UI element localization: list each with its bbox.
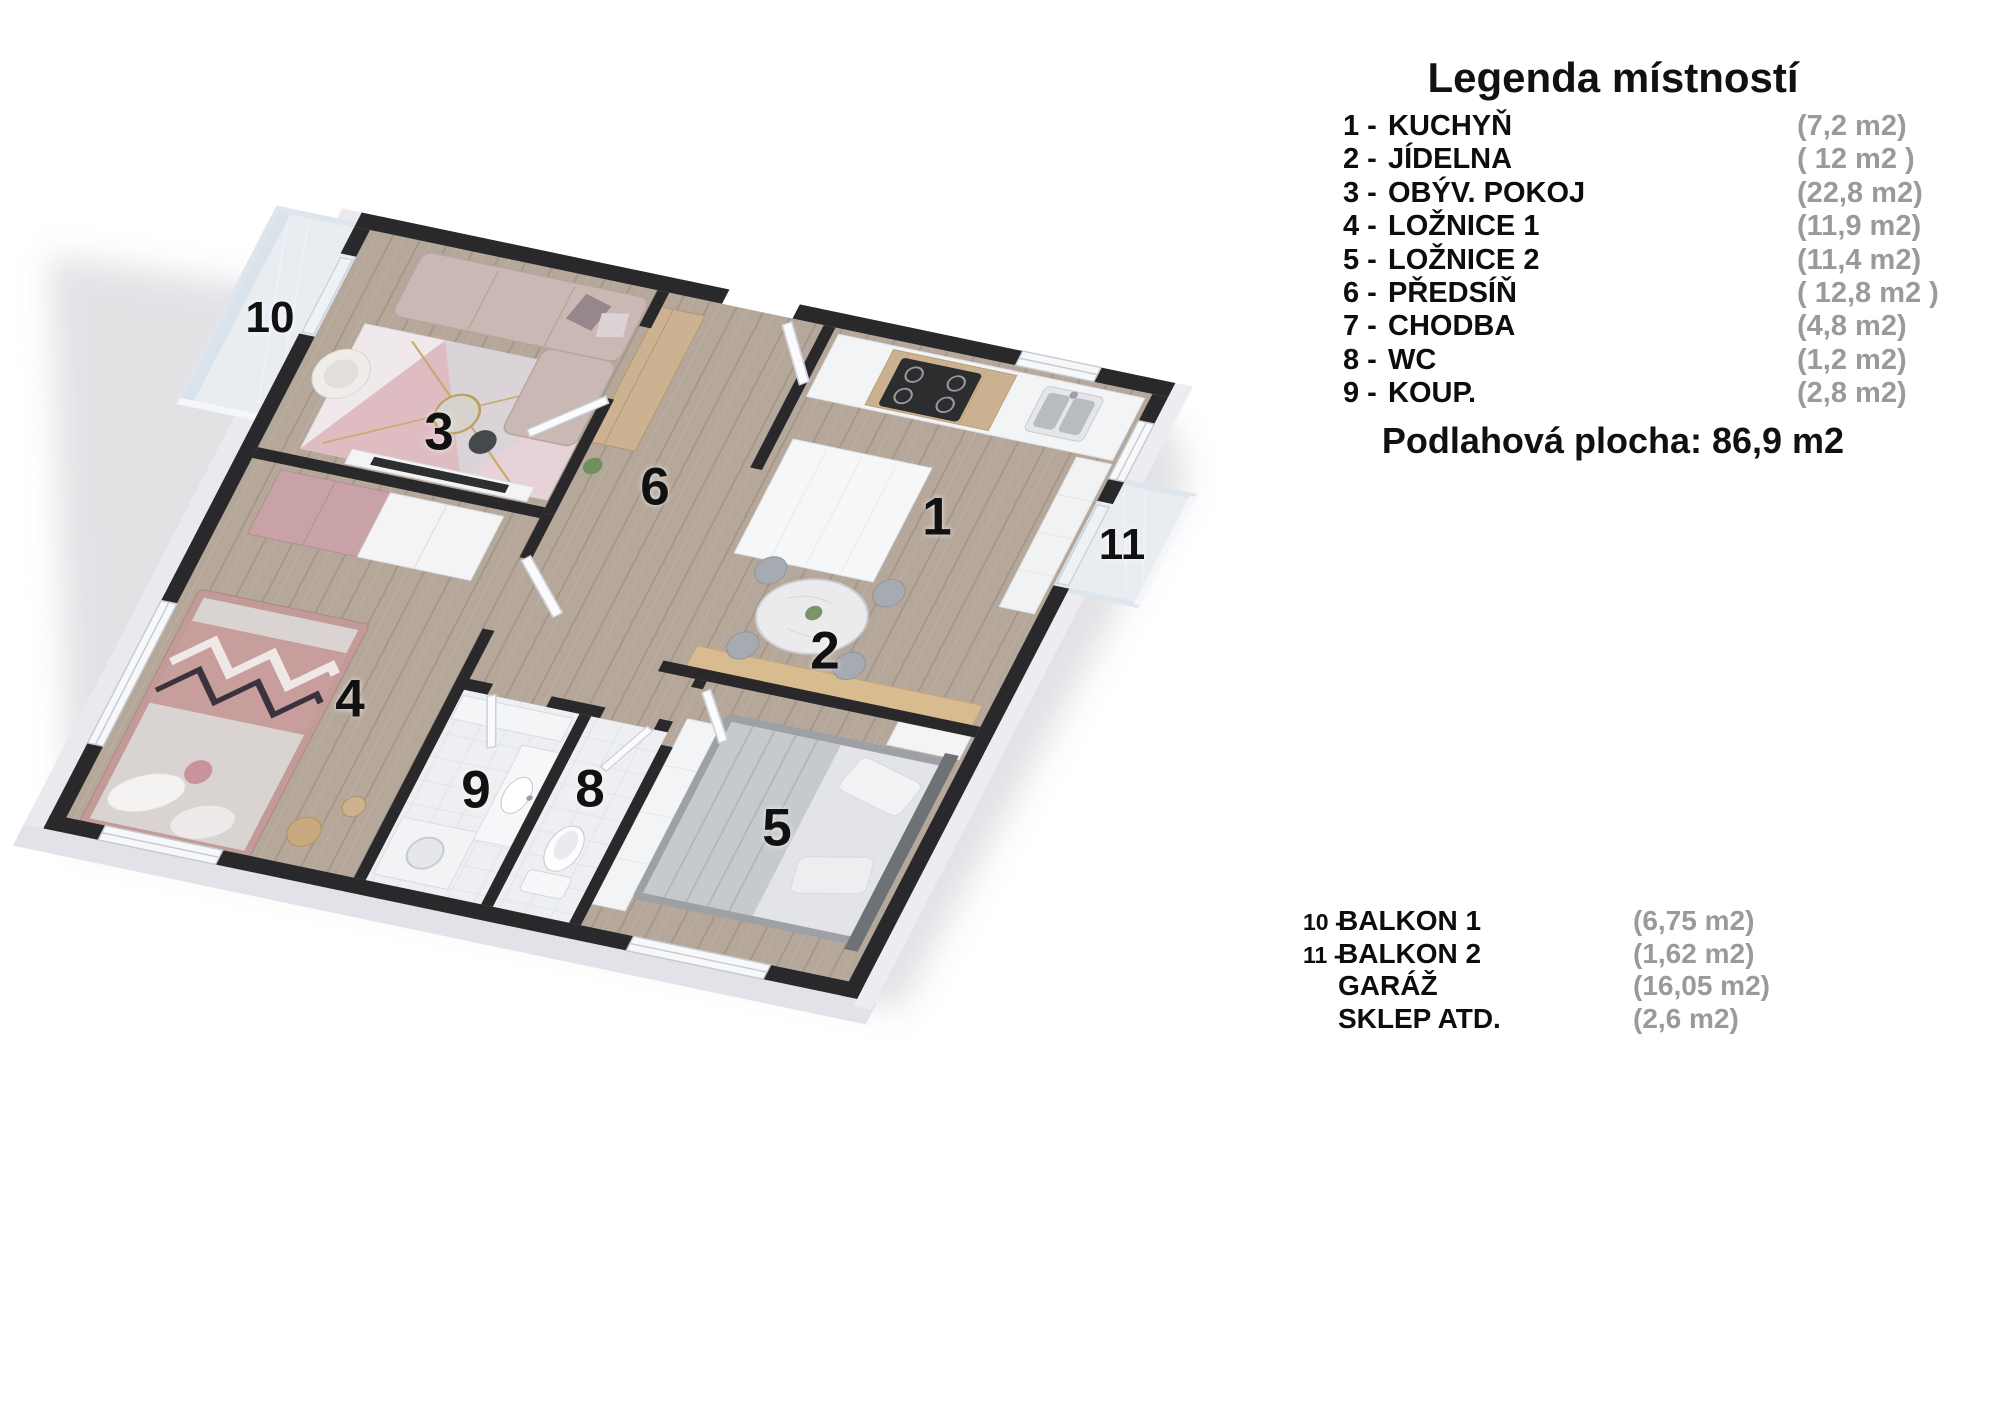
legend-title: Legenda místností	[1343, 54, 1883, 102]
plan-label-koupelna: 9	[461, 764, 490, 817]
total-floor-area: Podlahová plocha: 86,9 m2	[1343, 420, 1883, 462]
room-number: 1 -	[1343, 110, 1388, 143]
room-number: 4 -	[1343, 210, 1388, 243]
extra-number: 10 -	[1303, 909, 1338, 936]
legend-row: 1 - KUCHYŇ (7,2 m2)	[1343, 110, 1943, 143]
room-area: (2,8 m2)	[1797, 377, 1943, 410]
room-number: 3 -	[1343, 177, 1388, 210]
legend-extra-row: 11 - BALKON 2 (1,62 m2)	[1303, 938, 1923, 971]
room-number: 9 -	[1343, 377, 1388, 410]
legend-row: 5 - LOŽNICE 2 (11,4 m2)	[1343, 244, 1943, 277]
plan-label-balkon1: 10	[246, 296, 295, 340]
legend-extra-row: 10 - BALKON 1 (6,75 m2)	[1303, 905, 1923, 938]
plan-label-jidelna: 2	[810, 625, 839, 678]
legend-extras-list: 10 - BALKON 1 (6,75 m2) 11 - BALKON 2 (1…	[1303, 905, 1923, 1036]
room-area: (7,2 m2)	[1797, 110, 1943, 143]
legend-row: 6 - PŘEDSÍŇ ( 12,8 m2 )	[1343, 277, 1943, 310]
extra-area: (16,05 m2)	[1633, 970, 1923, 1002]
room-area: (1,2 m2)	[1797, 344, 1943, 377]
legend-room-list: 1 - KUCHYŇ (7,2 m2) 2 - JÍDELNA ( 12 m2 …	[1343, 110, 1943, 411]
room-area: (4,8 m2)	[1797, 310, 1943, 343]
extra-area: (6,75 m2)	[1633, 905, 1923, 937]
room-label: CHODBA	[1388, 310, 1797, 343]
room-label: LOŽNICE 1	[1388, 210, 1797, 243]
room-label: KOUP.	[1388, 377, 1797, 410]
legend-row: 7 - CHODBA (4,8 m2)	[1343, 310, 1943, 343]
room-number: 2 -	[1343, 143, 1388, 176]
room-number: 8 -	[1343, 344, 1388, 377]
plan-label-balkon2: 11	[1099, 523, 1146, 567]
plan-label-wc: 8	[575, 763, 604, 816]
plan-label-kuchyn: 1	[922, 491, 951, 544]
room-area: ( 12,8 m2 )	[1797, 277, 1943, 310]
extra-label: BALKON 1	[1338, 905, 1633, 937]
room-area: ( 12 m2 )	[1797, 143, 1943, 176]
legend-row: 4 - LOŽNICE 1 (11,9 m2)	[1343, 210, 1943, 243]
legend-row: 8 - WC (1,2 m2)	[1343, 344, 1943, 377]
extra-area: (1,62 m2)	[1633, 938, 1923, 970]
plan-label-obyv-pokoj: 3	[424, 406, 453, 459]
room-number: 5 -	[1343, 244, 1388, 277]
room-label: PŘEDSÍŇ	[1388, 277, 1797, 310]
legend-row: 2 - JÍDELNA ( 12 m2 )	[1343, 143, 1943, 176]
room-label: LOŽNICE 2	[1388, 244, 1797, 277]
room-area: (11,9 m2)	[1797, 210, 1943, 243]
legend-extra-row: SKLEP ATD. (2,6 m2)	[1303, 1003, 1923, 1036]
room-area: (22,8 m2)	[1797, 177, 1943, 210]
legend-row: 9 - KOUP. (2,8 m2)	[1343, 377, 1943, 410]
room-number: 7 -	[1343, 310, 1388, 343]
room-label: JÍDELNA	[1388, 143, 1797, 176]
plan-label-loznice2: 5	[762, 802, 791, 855]
room-number: 6 -	[1343, 277, 1388, 310]
plan-label-loznice1: 4	[335, 673, 364, 726]
extra-label: SKLEP ATD.	[1338, 1003, 1633, 1035]
plan-label-predsin: 6	[640, 461, 669, 514]
extra-label: GARÁŽ	[1338, 970, 1633, 1002]
extra-area: (2,6 m2)	[1633, 1003, 1923, 1035]
room-label: WC	[1388, 344, 1797, 377]
room-label: KUCHYŇ	[1388, 110, 1797, 143]
legend-extra-row: GARÁŽ (16,05 m2)	[1303, 970, 1923, 1003]
extra-number: 11 -	[1303, 942, 1338, 969]
room-label: OBÝV. POKOJ	[1388, 177, 1797, 210]
extra-label: BALKON 2	[1338, 938, 1633, 970]
room-area: (11,4 m2)	[1797, 244, 1943, 277]
legend-row: 3 - OBÝV. POKOJ (22,8 m2)	[1343, 177, 1943, 210]
